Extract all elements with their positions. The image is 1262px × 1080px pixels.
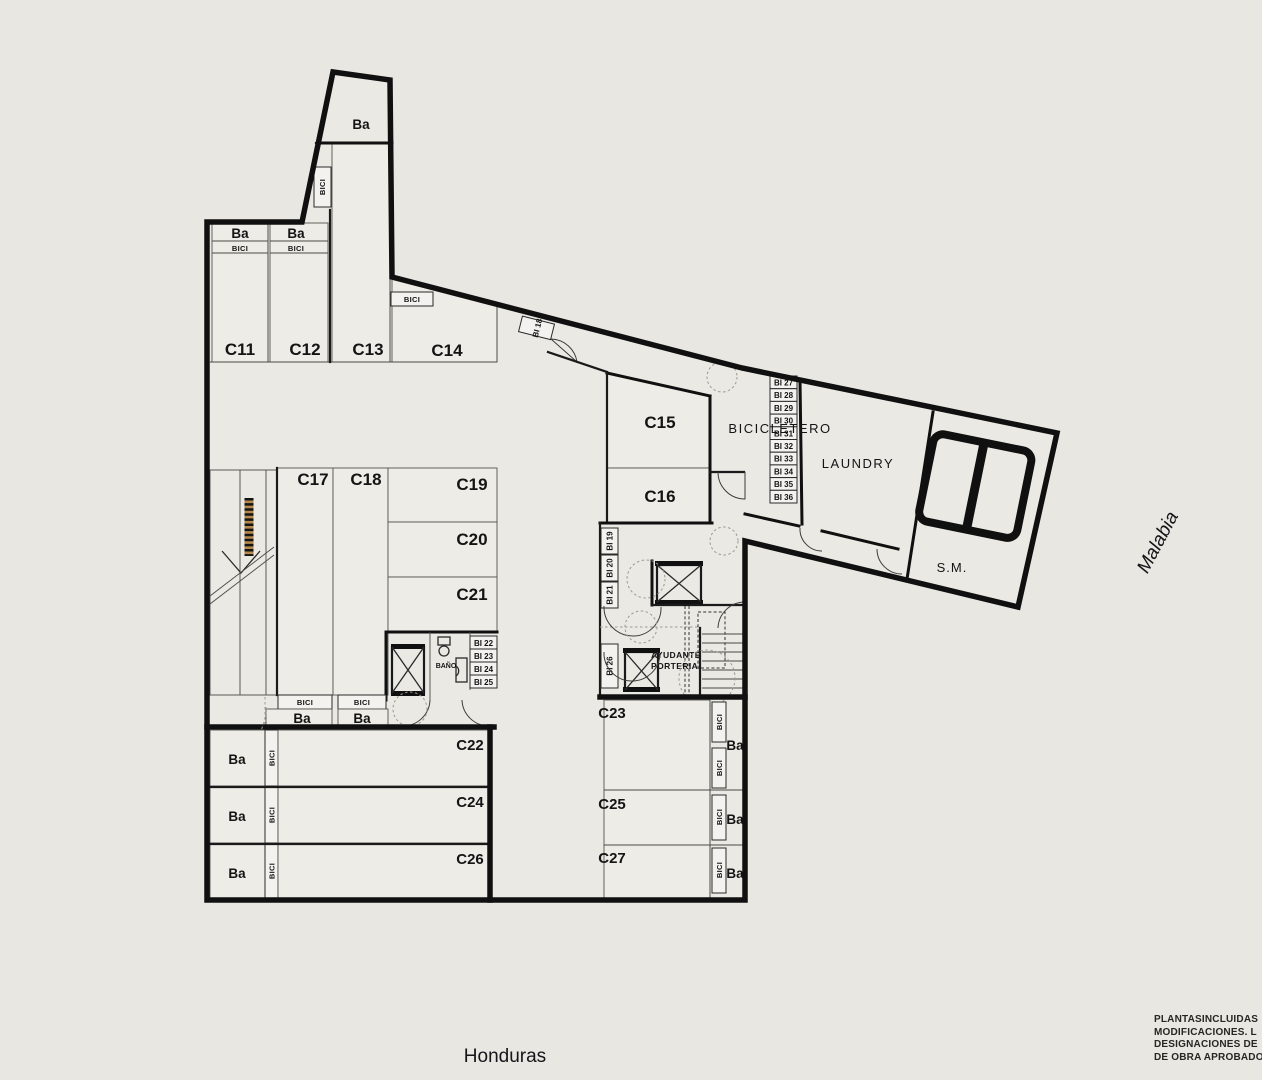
bi19-label: BI 19 (606, 531, 615, 551)
bici-label: BICI (268, 750, 277, 766)
bici-label: BICI (715, 862, 724, 878)
bici-label: BICI (715, 760, 724, 776)
ba-label: Ba (228, 809, 246, 824)
bike-rack-bi27-36: BI 27 BI 28 BI 29 BI 30 BI 31 BI 32 BI 3… (770, 376, 797, 503)
ba-label: Ba (287, 226, 305, 241)
parking-c24-row: Ba BICI C24 (210, 787, 490, 843)
room-label-c17: C17 (297, 470, 328, 489)
bi34-label: BI 34 (774, 467, 794, 476)
bi22-25-lockers: BI 22 BI 23 BI 24 BI 25 (470, 636, 497, 688)
bici-label: BICI (318, 179, 327, 195)
bi33-label: BI 33 (774, 455, 794, 464)
parking-c19: C19 (388, 468, 497, 522)
ba-label: Ba (352, 117, 370, 132)
room-label-c14: C14 (431, 341, 463, 360)
room-label-laundry: LAUNDRY (822, 456, 894, 471)
parking-c20: C20 (388, 522, 497, 577)
parking-c26-row: Ba BICI C26 (210, 844, 490, 898)
ba-label: Ba (293, 711, 311, 726)
room-label-c18: C18 (350, 470, 381, 489)
bi29-label: BI 29 (774, 404, 794, 413)
room-label-sm: S.M. (937, 560, 968, 575)
bici-label: BICI (715, 809, 724, 825)
street-label-malabia: Malabia (1133, 508, 1183, 577)
room-label-c16: C16 (644, 487, 675, 506)
ba-label: Ba (726, 738, 744, 753)
bici-label: BICI (268, 863, 277, 879)
bi36-label: BI 36 (774, 493, 794, 502)
bici-label: BICI (354, 698, 370, 707)
room-label-c27: C27 (598, 850, 626, 867)
plan-note-line: PLANTASINCLUIDAS (1154, 1014, 1262, 1027)
room-label-c15: C15 (644, 413, 675, 432)
room-label-bano: BAÑO (436, 661, 457, 670)
parking-c27: C27 BICI Ba (598, 845, 744, 898)
parking-c16: C16 (607, 468, 710, 523)
bici-label: BICI (232, 244, 248, 253)
room-label-c23: C23 (598, 705, 626, 722)
room-label-c19: C19 (456, 475, 487, 494)
bici-label: BICI (715, 714, 724, 730)
bi20-label: BI 20 (606, 558, 615, 578)
ba-label: Ba (231, 226, 249, 241)
room-label-c12: C12 (289, 340, 320, 359)
room-label-c25: C25 (598, 796, 626, 813)
bi28-label: BI 28 (774, 391, 794, 400)
plan-note: PLANTASINCLUIDAS MODIFICACIONES. L DESIG… (1154, 1014, 1262, 1064)
parking-c11: Ba BICI C11 (212, 223, 268, 362)
bi21-label: BI 21 (606, 585, 615, 605)
bi32-label: BI 32 (774, 442, 794, 451)
parking-c21: C21 (388, 577, 497, 632)
bi24-label: BI 24 (474, 665, 494, 674)
room-label-c26: C26 (456, 851, 484, 868)
parking-c12: Ba BICI C12 (270, 223, 328, 362)
parking-c22-row: Ba BICI C22 (210, 730, 490, 786)
parking-c17: C17 (277, 468, 333, 695)
street-label-honduras: Honduras (464, 1046, 546, 1067)
floor-plan-canvas: Ba BICI C11 Ba BICI C12 C13 Ba BICI BICI… (0, 0, 1262, 1080)
bi35-label: BI 35 (774, 480, 794, 489)
room-label-bicicletero: BICICLETERO (728, 421, 831, 436)
parking-c18: C18 (333, 468, 388, 695)
ba-label: Ba (228, 752, 246, 767)
ba-label: Ba (726, 866, 744, 881)
ba-label: Ba (353, 711, 371, 726)
room-label-c20: C20 (456, 530, 487, 549)
bi23-label: BI 23 (474, 652, 494, 661)
plan-note-line: MODIFICACIONES. L (1154, 1027, 1262, 1040)
bici-label: BICI (288, 244, 304, 253)
ba-label: Ba (228, 866, 246, 881)
ba-label: Ba (726, 812, 744, 827)
plan-note-line: DE OBRA APROBADO (1154, 1052, 1262, 1065)
room-label-c13: C13 (352, 340, 383, 359)
room-label-c24: C24 (456, 794, 484, 811)
bici-label: BICI (404, 295, 420, 304)
room-label-c11: C11 (225, 340, 255, 359)
plan-note-line: DESIGNACIONES DE (1154, 1039, 1262, 1052)
bi25-label: BI 25 (474, 678, 494, 687)
bici-label: BICI (297, 698, 313, 707)
bi22-label: BI 22 (474, 639, 494, 648)
bi19-21-lockers: BI 19 BI 20 BI 21 (601, 528, 618, 608)
room-label-c21: C21 (456, 585, 487, 604)
bici-label: BICI (268, 807, 277, 823)
parking-c25: C25 BICI Ba (598, 790, 744, 845)
room-label-c22: C22 (456, 737, 484, 754)
